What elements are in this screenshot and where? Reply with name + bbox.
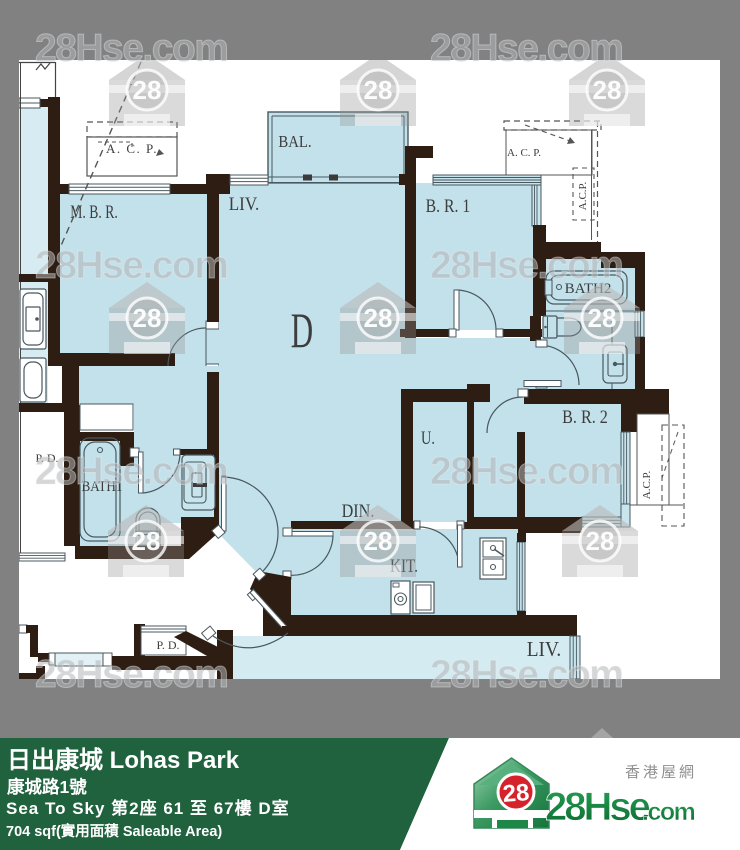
svg-text:Sea To Sky 第2座 61 至 67樓 D室: Sea To Sky 第2座 61 至 67樓 D室 [6, 798, 290, 818]
svg-text:P. D.: P. D. [156, 638, 179, 652]
svg-text:28Hse: 28Hse [545, 785, 650, 829]
svg-text:D: D [291, 303, 313, 358]
svg-text:M. B. R.: M. B. R. [70, 201, 118, 223]
svg-text:28Hse.com: 28Hse.com [430, 244, 622, 287]
svg-text:.com: .com [642, 798, 695, 826]
svg-text:U.: U. [421, 427, 435, 448]
svg-text:28Hse.com: 28Hse.com [430, 450, 622, 493]
svg-text:28Hse.com: 28Hse.com [430, 653, 622, 696]
svg-text:28: 28 [502, 779, 531, 808]
svg-text:B. R. 2: B. R. 2 [562, 406, 608, 428]
svg-text:康城路1號: 康城路1號 [7, 777, 87, 797]
svg-text:A.C.P.: A.C.P. [641, 471, 653, 500]
svg-text:A.C.P.: A.C.P. [577, 182, 589, 211]
svg-text:A. C. P.: A. C. P. [507, 147, 541, 159]
svg-text:28Hse.com: 28Hse.com [35, 244, 227, 287]
svg-text:日出康城 Lohas Park: 日出康城 Lohas Park [7, 746, 240, 774]
svg-text:28Hse.com: 28Hse.com [35, 653, 227, 696]
svg-text:BAL.: BAL. [278, 133, 311, 151]
svg-text:B. R. 1: B. R. 1 [426, 195, 471, 217]
svg-text:A. C. P.: A. C. P. [106, 141, 158, 156]
svg-text:28Hse.com: 28Hse.com [430, 27, 622, 70]
svg-text:LIV.: LIV. [229, 193, 260, 214]
svg-text:28Hse.com: 28Hse.com [35, 27, 227, 70]
svg-text:704 sqf(實用面積 Saleable Area): 704 sqf(實用面積 Saleable Area) [6, 822, 222, 840]
svg-text:28Hse.com: 28Hse.com [35, 450, 227, 493]
svg-text:香港屋網: 香港屋網 [625, 764, 697, 781]
